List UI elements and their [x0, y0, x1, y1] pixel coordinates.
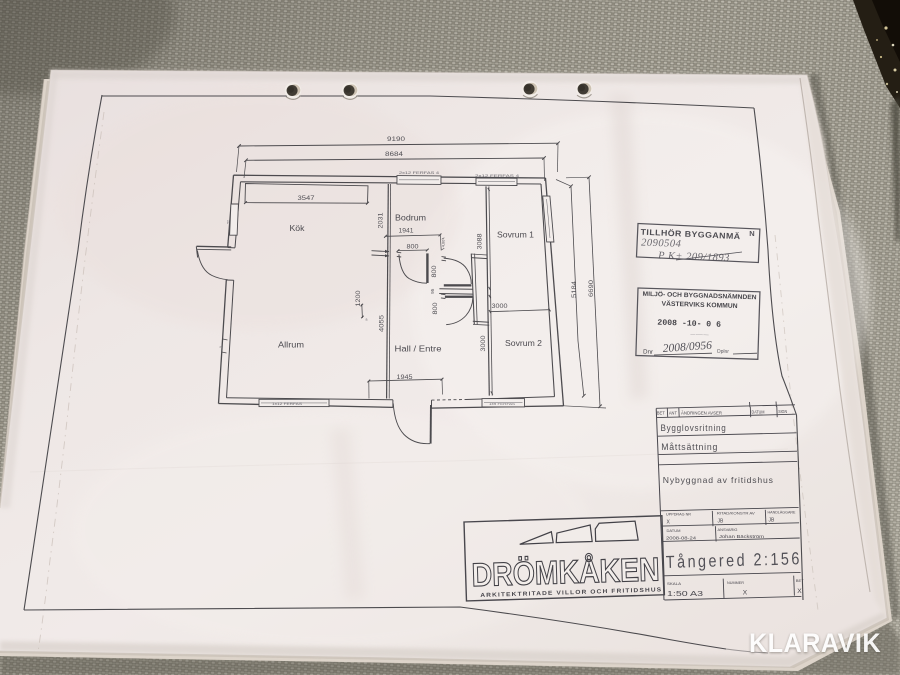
svg-text:52: 52	[227, 220, 231, 224]
svg-text:JB: JB	[769, 517, 776, 523]
svg-text:BET: BET	[657, 411, 665, 416]
svg-text:Tångered 2:156: Tångered 2:156	[666, 548, 803, 572]
svg-text:a: a	[366, 318, 368, 322]
svg-text:Kök: Kök	[290, 223, 306, 233]
svg-text:Allrum: Allrum	[278, 339, 304, 349]
svg-text:Johan Bäckström: Johan Bäckström	[719, 534, 764, 540]
svg-text:9: 9	[219, 346, 223, 348]
svg-text:DATUM: DATUM	[667, 528, 681, 533]
svg-text:3000: 3000	[492, 303, 509, 310]
svg-text:Sovrum 2: Sovrum 2	[505, 338, 542, 348]
svg-text:8684: 8684	[385, 151, 403, 158]
svg-text:3000: 3000	[480, 335, 487, 352]
svg-text:9190: 9190	[387, 136, 405, 143]
svg-text:5184: 5184	[571, 280, 578, 298]
svg-text:800: 800	[431, 265, 438, 278]
svg-text:2008 -10-: 2008 -10-	[657, 319, 701, 329]
svg-text:1941: 1941	[399, 228, 415, 235]
svg-text:—·—·—: —·—·—	[690, 332, 709, 339]
svg-text:1:50 A3: 1:50 A3	[667, 589, 703, 598]
svg-text:SKALA: SKALA	[667, 581, 681, 586]
svg-text:ANSVARIG: ANSVARIG	[718, 527, 738, 532]
svg-text:1x9 FERFAS: 1x9 FERFAS	[489, 402, 515, 406]
svg-text:1200: 1200	[355, 290, 362, 307]
svg-text:DRÖMKÅKEN: DRÖMKÅKEN	[471, 550, 660, 593]
svg-text:ANT: ANT	[669, 410, 677, 415]
svg-text:Bygglovsritning: Bygglovsritning	[661, 423, 727, 433]
svg-text:2x12 FERFAS 4: 2x12 FERFAS 4	[399, 171, 439, 175]
svg-text:JB: JB	[718, 518, 725, 524]
svg-text:2x12 FERFAS 4: 2x12 FERFAS 4	[475, 174, 519, 178]
svg-text:95: 95	[430, 288, 435, 294]
svg-text:3547: 3547	[298, 195, 316, 202]
svg-text:Dnr: Dnr	[643, 349, 653, 356]
svg-text:4,00: 4,00	[441, 239, 446, 248]
svg-text:Sovrum 1: Sovrum 1	[497, 229, 534, 239]
svg-text:Bodrum: Bodrum	[395, 213, 426, 223]
svg-text:Nybyggnad av fritidshus: Nybyggnad av fritidshus	[663, 476, 774, 485]
svg-text:ÄNDRINGEN AVSER: ÄNDRINGEN AVSER	[681, 410, 722, 415]
svg-text:Måttsättning: Måttsättning	[661, 442, 718, 452]
svg-text:RITAD/KONSTR AV: RITAD/KONSTR AV	[717, 511, 755, 516]
svg-text:1x12 FERFAS: 1x12 FERFAS	[272, 402, 302, 406]
svg-text:2090504: 2090504	[641, 238, 682, 250]
svg-text:2031: 2031	[378, 212, 385, 229]
svg-text:Dplnr: Dplnr	[717, 349, 729, 355]
svg-text:KLARAVIK: KLARAVIK	[749, 628, 881, 658]
svg-text:4055: 4055	[379, 314, 386, 332]
svg-text:0 6: 0 6	[706, 320, 721, 329]
svg-text:N: N	[749, 229, 754, 238]
svg-text:3088: 3088	[477, 233, 484, 250]
svg-text:800: 800	[432, 302, 439, 315]
svg-text:HANDLÄGGARE: HANDLÄGGARE	[768, 510, 796, 515]
svg-text:X: X	[743, 590, 748, 597]
svg-text:DATUM: DATUM	[752, 409, 765, 414]
svg-text:NUMMER: NUMMER	[727, 580, 744, 585]
svg-text:SIGN: SIGN	[778, 409, 787, 414]
svg-text:2008-08-24: 2008-08-24	[666, 535, 697, 540]
svg-text:X: X	[797, 588, 802, 595]
svg-text:BET: BET	[796, 578, 805, 583]
svg-text:UPPDRAG NR: UPPDRAG NR	[666, 512, 691, 517]
svg-text:800: 800	[407, 243, 420, 250]
svg-text:Hall / Entre: Hall / Entre	[395, 343, 442, 353]
